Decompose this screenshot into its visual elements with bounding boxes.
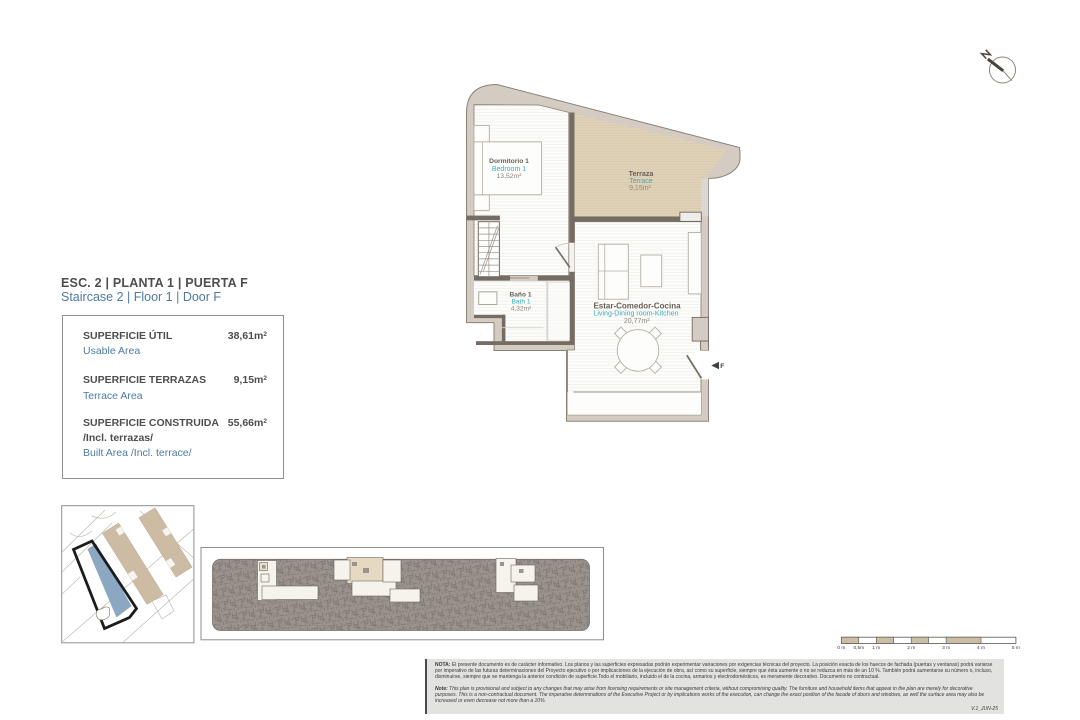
svg-text:3 m: 3 m: [942, 645, 950, 651]
svg-text:13,52m²: 13,52m²: [497, 173, 523, 180]
svg-text:0,5m: 0,5m: [853, 645, 864, 651]
svg-text:2 m: 2 m: [907, 645, 915, 651]
svg-text:Dormitorio 1: Dormitorio 1: [489, 158, 529, 165]
svg-text:Baño 1: Baño 1: [510, 292, 532, 299]
svg-text:0 m: 0 m: [837, 645, 845, 651]
svg-text:4 m: 4 m: [977, 645, 985, 651]
svg-text:Terrace: Terrace: [629, 178, 652, 185]
svg-text:1 m: 1 m: [872, 645, 880, 651]
svg-text:5 m: 5 m: [1012, 645, 1020, 651]
svg-text:20,77m²: 20,77m²: [624, 318, 650, 325]
svg-text:Terraza: Terraza: [629, 170, 654, 178]
svg-text:9,15m²: 9,15m²: [629, 185, 651, 192]
svg-text:4,32m²: 4,32m²: [511, 305, 532, 312]
svg-text:Living-Dining room-Kitchen: Living-Dining room-Kitchen: [593, 310, 678, 318]
svg-text:Bedroom 1: Bedroom 1: [492, 166, 526, 173]
svg-text:F: F: [720, 363, 724, 370]
